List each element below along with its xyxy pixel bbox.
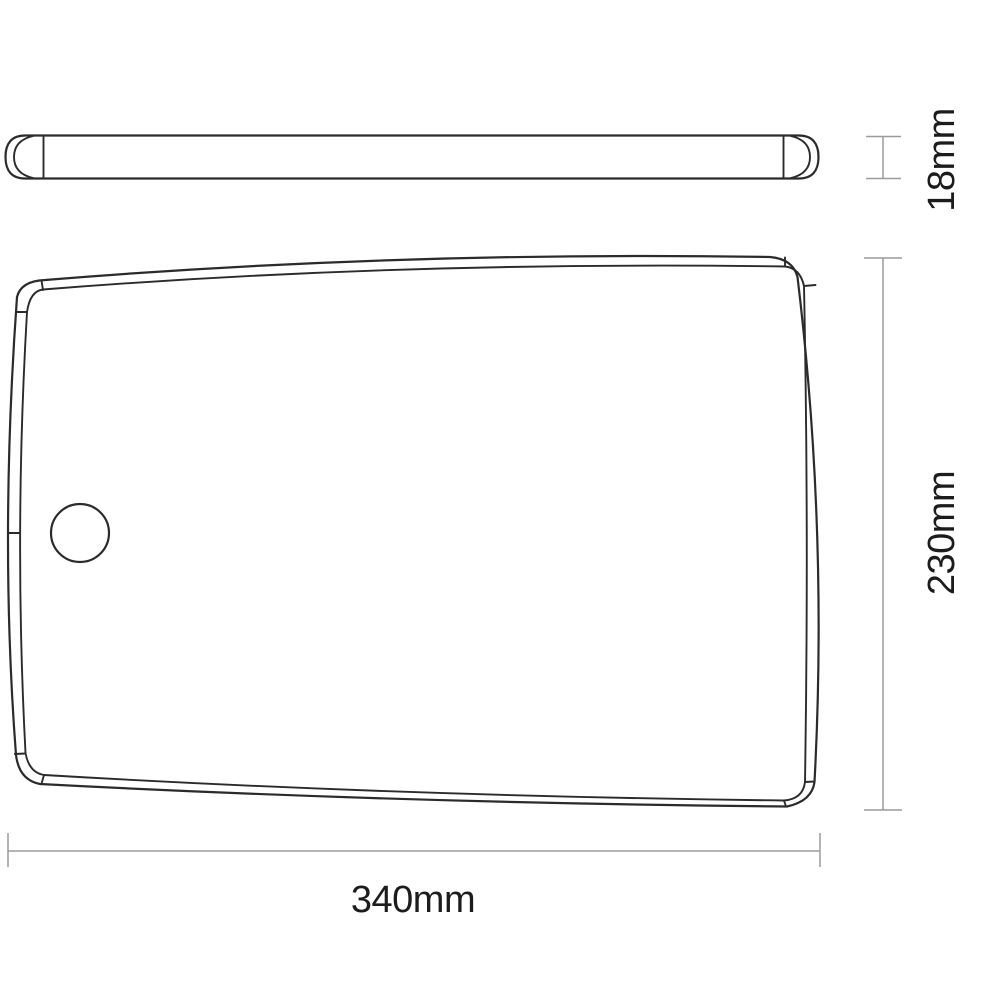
side-view-left-bevel-curve: [14, 136, 33, 178]
bottom-left-corner-side-tick: [15, 754, 26, 755]
side-view-right-bevel-curve: [791, 136, 810, 178]
bottom-left-corner-bottom-tick: [42, 775, 45, 784]
width-label: 340mm: [351, 879, 475, 921]
thumb-hole: [51, 504, 109, 562]
thickness-dimension: 18mm: [866, 108, 963, 212]
width-dimension: 340mm: [8, 833, 820, 921]
drawing-sheet: 18mm 230mm: [0, 0, 1000, 1000]
height-label: 230mm: [921, 471, 963, 595]
side-view-outline: [6, 136, 819, 179]
top-right-corner-side-tick: [804, 285, 816, 286]
bottom-right-corner-side-tick: [805, 782, 815, 783]
height-dimension: 230mm: [864, 258, 963, 810]
drawing-canvas: 18mm 230mm: [0, 0, 1000, 1000]
plan-view-outer-outline: [8, 256, 819, 807]
thickness-label: 18mm: [921, 108, 963, 212]
top-left-corner-top-tick: [42, 281, 44, 291]
plan-view-inner-bevel-line: [20, 266, 807, 801]
side-profile-view: [6, 136, 819, 179]
plan-view: [8, 256, 819, 807]
